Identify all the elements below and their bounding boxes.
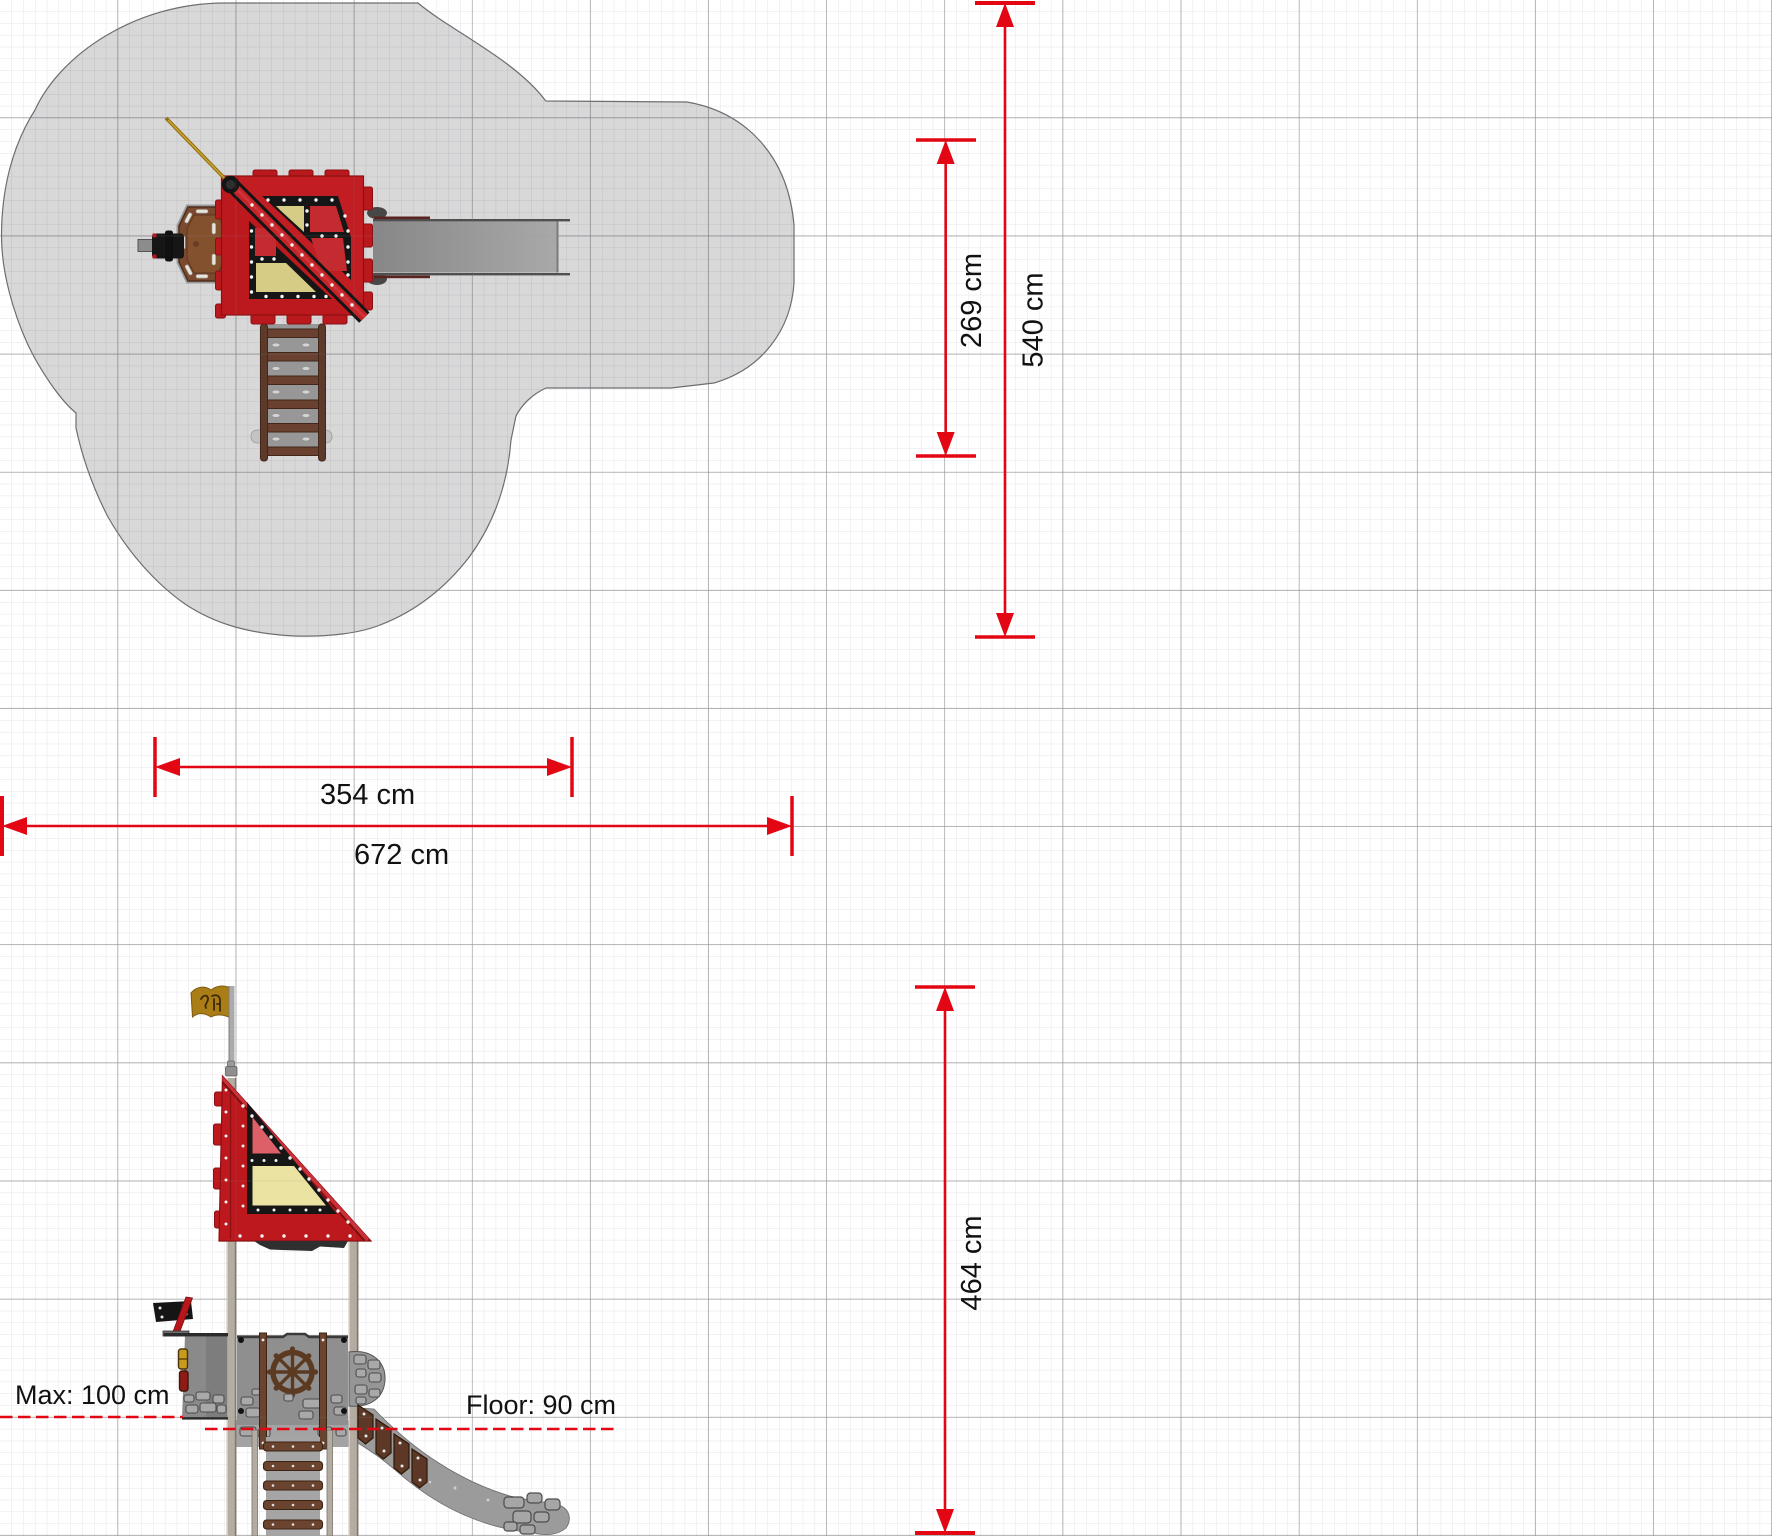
svg-text:672 cm: 672 cm — [354, 839, 449, 871]
svg-text:Floor: 90 cm: Floor: 90 cm — [466, 1390, 616, 1420]
svg-text:354 cm: 354 cm — [320, 779, 415, 811]
svg-text:Max: 100 cm: Max: 100 cm — [15, 1380, 170, 1410]
svg-text:464 cm: 464 cm — [956, 1215, 988, 1310]
svg-text:269 cm: 269 cm — [956, 253, 988, 348]
svg-text:540 cm: 540 cm — [1018, 272, 1050, 367]
